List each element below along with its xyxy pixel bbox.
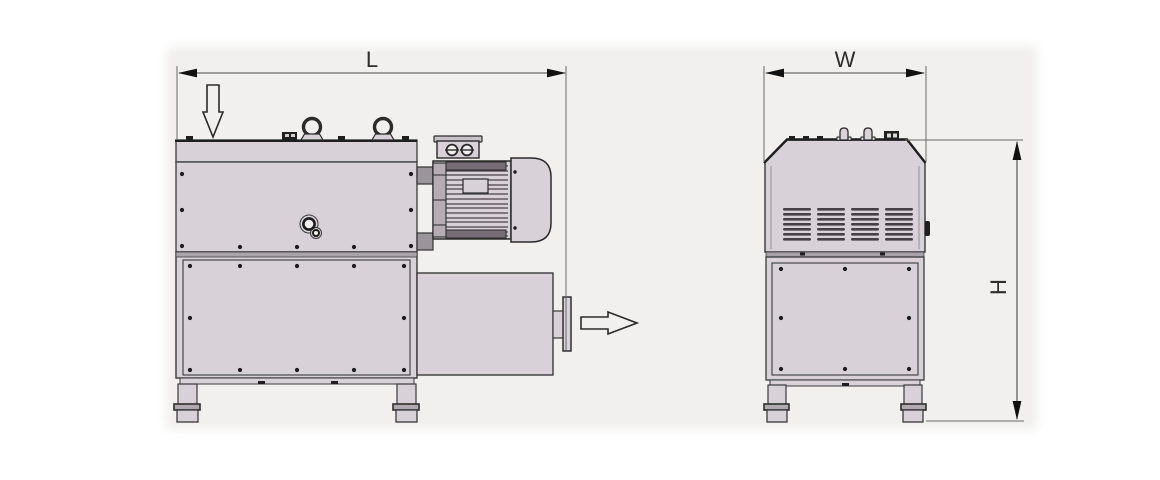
motor-bracket xyxy=(417,233,433,250)
access-panel-front xyxy=(772,263,918,375)
motor-bracket xyxy=(417,167,433,184)
lifting-eye-front-icon xyxy=(861,128,875,141)
dimension-drawing: L W H xyxy=(0,0,1160,480)
sensor-block xyxy=(282,132,297,140)
drawing-page: L W H xyxy=(0,0,1160,480)
lifting-eye-icon xyxy=(301,119,323,141)
machine-leg xyxy=(901,385,926,422)
upper-housing xyxy=(176,162,417,252)
lifting-eye-front-icon xyxy=(837,128,851,141)
motor-nameplate xyxy=(463,179,488,193)
upper-housing-front xyxy=(764,128,930,257)
terminal-box xyxy=(437,141,479,158)
length-dimension-label: L xyxy=(366,47,378,72)
outlet-arrow-icon xyxy=(581,312,637,334)
front-view xyxy=(764,128,930,422)
lifting-eye-icon xyxy=(372,119,394,141)
outlet-flange xyxy=(563,297,571,351)
machine-leg xyxy=(174,384,200,422)
outlet-housing xyxy=(417,273,571,375)
machine-leg xyxy=(393,384,419,422)
lower-housing-front xyxy=(766,257,924,386)
lower-housing xyxy=(176,252,417,384)
electric-motor xyxy=(433,136,551,242)
side-view xyxy=(174,85,637,422)
sensor-block-front xyxy=(884,131,899,140)
motor-fan-cover xyxy=(511,158,551,242)
height-dimension-label: H xyxy=(986,279,1011,295)
side-latch xyxy=(925,221,931,236)
width-dimension-label: W xyxy=(835,47,856,72)
access-panel xyxy=(183,260,410,375)
machine-leg xyxy=(764,385,789,422)
inlet-arrow-icon xyxy=(203,85,223,137)
